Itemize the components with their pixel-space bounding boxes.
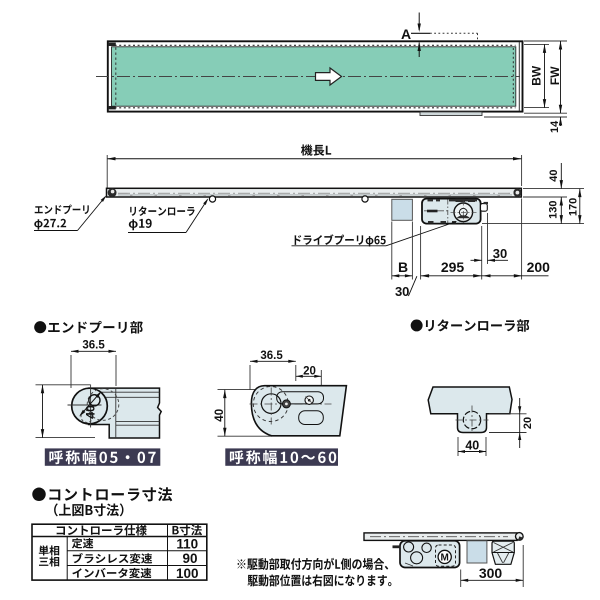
svg-text:BW: BW [530, 65, 544, 86]
svg-text:40: 40 [465, 438, 479, 452]
svg-text:300: 300 [479, 565, 503, 581]
svg-text:40: 40 [83, 405, 97, 419]
svg-text:36.5: 36.5 [82, 340, 105, 352]
svg-text:295: 295 [441, 259, 465, 275]
svg-text:110: 110 [176, 537, 198, 552]
svg-text:170: 170 [568, 198, 580, 216]
svg-text:90: 90 [182, 551, 197, 566]
svg-text:20: 20 [303, 365, 316, 377]
svg-text:A: A [401, 26, 411, 42]
svg-text:200: 200 [527, 259, 551, 275]
svg-text:36.5: 36.5 [260, 350, 283, 362]
svg-text:FW: FW [548, 66, 562, 85]
svg-text:20: 20 [522, 417, 534, 429]
svg-text:14: 14 [549, 120, 561, 133]
svg-text:30: 30 [395, 284, 409, 299]
svg-text:40: 40 [214, 409, 226, 422]
svg-text:40: 40 [548, 169, 560, 181]
svg-text:B: B [398, 259, 408, 275]
svg-text:100: 100 [176, 566, 199, 581]
svg-text:M: M [441, 553, 449, 564]
svg-text:30: 30 [493, 246, 507, 261]
svg-text:130: 130 [548, 201, 560, 219]
